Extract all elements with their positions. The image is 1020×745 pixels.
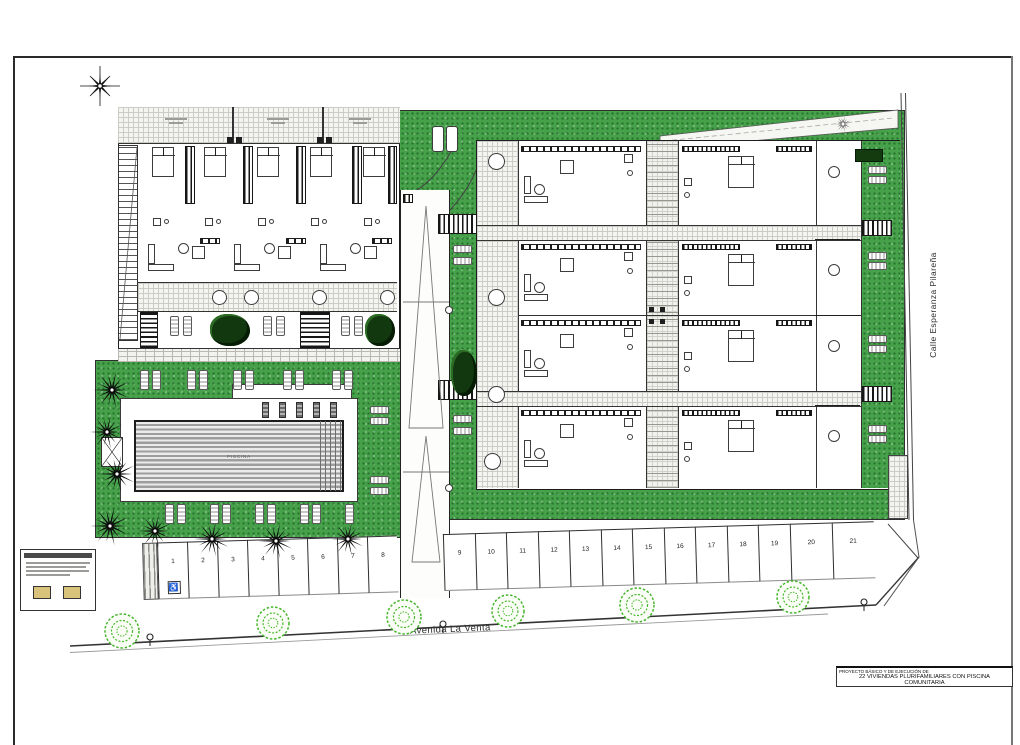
parking-space-number: 20 xyxy=(791,539,832,547)
deck-lounger-icon xyxy=(313,402,320,418)
legend-icon xyxy=(33,586,51,599)
bed-icon xyxy=(728,156,754,188)
sun-lounger-icon xyxy=(370,476,389,484)
bed-pillow-split xyxy=(163,148,164,156)
sofa-icon xyxy=(524,274,531,292)
street-lamp-icon xyxy=(147,634,153,646)
sink-icon xyxy=(322,219,327,224)
sink-icon xyxy=(684,290,690,296)
wardrobe-icon xyxy=(682,320,740,326)
sun-lounger-icon xyxy=(255,504,264,524)
parking-space-number: 11 xyxy=(507,547,538,555)
parking-space-number: 15 xyxy=(633,544,664,552)
kitchen-counter-icon xyxy=(521,244,641,250)
sun-lounger-icon xyxy=(263,316,272,336)
dining-table-icon xyxy=(192,246,205,259)
terrace-table-icon xyxy=(828,430,840,442)
accessible-parking-icon: ♿ xyxy=(167,581,180,594)
sun-lounger-icon xyxy=(868,425,887,433)
sun-lounger-icon xyxy=(453,257,472,265)
stair-core-icon xyxy=(296,146,306,204)
parking-space: 16 xyxy=(663,527,696,585)
parking-space-number: 9 xyxy=(444,549,475,557)
parking-hatch-strip xyxy=(142,543,159,600)
bed-icon xyxy=(152,147,174,177)
sink-icon xyxy=(684,366,690,372)
parked-car-icon xyxy=(432,126,444,152)
shower-icon xyxy=(624,328,633,337)
parking-space: 12 xyxy=(537,530,570,588)
armchair-icon xyxy=(350,243,361,254)
armchair-icon xyxy=(534,358,545,369)
blockA-roof-patio xyxy=(118,107,400,144)
bed-pillow xyxy=(729,421,755,429)
parking-space-number: 10 xyxy=(476,548,507,556)
armchair-icon xyxy=(264,243,275,254)
bed-pillow xyxy=(364,148,386,156)
parking-space-number: 7 xyxy=(338,552,367,560)
parking-space-number: 13 xyxy=(570,545,601,553)
toilet-icon xyxy=(311,218,319,226)
terrace-table-icon xyxy=(212,290,227,305)
patio-label xyxy=(271,122,285,124)
edge-stairs-icon xyxy=(862,386,892,402)
legend-title xyxy=(24,553,92,558)
deck-lounger-icon xyxy=(330,402,337,418)
parking-space-number: 17 xyxy=(696,542,727,550)
terrace-divider xyxy=(815,405,860,406)
sink-icon xyxy=(164,219,169,224)
parking-space: 2 xyxy=(187,541,219,599)
sun-lounger-icon xyxy=(233,370,242,390)
parking-space-number: 21 xyxy=(833,537,874,545)
sheet-frame-top xyxy=(13,56,1013,58)
bed-icon xyxy=(310,147,332,177)
pool-equipment-box xyxy=(101,437,123,467)
parking-space-number: 2 xyxy=(188,557,217,565)
terrace-table-icon xyxy=(828,264,840,276)
sun-lounger-icon xyxy=(177,504,186,524)
stair-core-icon xyxy=(243,146,253,204)
patio-label xyxy=(169,122,183,124)
parking-space-number: 6 xyxy=(308,553,337,561)
pool-label: PISCINA xyxy=(227,454,251,459)
parking-space: 18 xyxy=(726,525,759,583)
sofa-icon xyxy=(524,350,531,368)
bed-pillow-split xyxy=(741,421,742,429)
garden-stair-icon xyxy=(300,312,330,348)
parking-space: 15 xyxy=(632,528,665,586)
sun-lounger-icon xyxy=(868,345,887,353)
sofa-icon xyxy=(524,196,548,203)
parking-space-number: 4 xyxy=(248,555,277,563)
parking-space: 8 xyxy=(367,535,399,593)
sun-lounger-icon xyxy=(210,504,219,524)
dining-table-icon xyxy=(560,258,574,272)
blockB-entry-path xyxy=(477,391,861,407)
bed-icon xyxy=(728,420,754,452)
sun-lounger-icon xyxy=(222,504,231,524)
street-tree-icon xyxy=(492,595,524,627)
sink-icon xyxy=(269,219,274,224)
deck-lounger-icon xyxy=(296,402,303,418)
sun-lounger-icon xyxy=(267,504,276,524)
sink-icon xyxy=(627,170,633,176)
street-tree-icon xyxy=(777,581,809,613)
parking-space: 7 xyxy=(337,536,369,594)
kitchen-counter-icon xyxy=(286,238,306,244)
sun-lounger-icon xyxy=(345,504,354,524)
street-label-bottom: Avenida La Venta xyxy=(410,622,491,637)
sofa-icon xyxy=(148,244,155,264)
sun-lounger-icon xyxy=(295,370,304,390)
wardrobe-icon xyxy=(776,320,812,326)
patio-label xyxy=(353,122,367,124)
parking-space-number: 16 xyxy=(665,543,696,551)
shower-icon xyxy=(624,418,633,427)
toilet-icon xyxy=(684,352,692,360)
shower-icon xyxy=(624,252,633,261)
parking-space: 3 xyxy=(217,540,249,598)
sun-lounger-icon xyxy=(283,370,292,390)
terrace-divider xyxy=(815,315,860,316)
bed-pillow-split xyxy=(268,148,269,156)
bed-pillow xyxy=(258,148,280,156)
corridor-post xyxy=(649,319,654,324)
edge-stairs-icon xyxy=(862,220,892,236)
sun-lounger-icon xyxy=(354,316,363,336)
bed-pillow-split xyxy=(741,157,742,165)
sun-lounger-icon xyxy=(300,504,309,524)
ramp-passage xyxy=(397,534,445,592)
sun-lounger-icon xyxy=(453,415,472,423)
sun-lounger-icon xyxy=(868,335,887,343)
dining-table-icon xyxy=(560,334,574,348)
bed-icon xyxy=(257,147,279,177)
blockB-entry-path xyxy=(477,225,861,241)
patio-label xyxy=(165,118,187,120)
planting-bed-icon xyxy=(365,314,395,346)
bed-pillow-split xyxy=(741,331,742,339)
sun-lounger-icon xyxy=(183,316,192,336)
sink-icon xyxy=(216,219,221,224)
planter-icon xyxy=(488,386,505,403)
corridor-post xyxy=(660,307,665,312)
parking-space: 17 xyxy=(695,526,728,584)
sun-lounger-icon xyxy=(170,316,179,336)
ramp-column xyxy=(445,484,453,492)
stair-core-icon xyxy=(352,146,362,204)
corridor-post xyxy=(660,319,665,324)
kitchen-counter-icon xyxy=(521,320,641,326)
sun-lounger-icon xyxy=(370,417,389,425)
north-arrow-icon xyxy=(80,66,120,106)
sink-icon xyxy=(375,219,380,224)
parking-space-number: 14 xyxy=(602,544,633,552)
parking-space-number: 18 xyxy=(728,541,759,549)
patio-label xyxy=(349,118,371,120)
toilet-icon xyxy=(684,178,692,186)
kitchen-counter-icon xyxy=(200,238,220,244)
sun-lounger-icon xyxy=(245,370,254,390)
armchair-icon xyxy=(534,282,545,293)
sheet-frame-left xyxy=(13,56,15,745)
armchair-icon xyxy=(534,448,545,459)
sun-lounger-icon xyxy=(312,504,321,524)
sun-lounger-icon xyxy=(140,370,149,390)
bed-pillow-split xyxy=(374,148,375,156)
armchair-icon xyxy=(534,184,545,195)
kitchen-counter-icon xyxy=(521,146,641,152)
sofa-icon xyxy=(524,294,548,301)
wardrobe-icon xyxy=(776,410,812,416)
parking-space: 14 xyxy=(600,528,633,586)
sun-lounger-icon xyxy=(453,427,472,435)
planter-icon xyxy=(488,289,505,306)
toilet-icon xyxy=(205,218,213,226)
toilet-icon xyxy=(684,442,692,450)
sun-lounger-icon xyxy=(868,252,887,260)
door-post xyxy=(236,137,242,143)
terrace-table-icon xyxy=(244,290,259,305)
parking-space: 19 xyxy=(758,524,791,582)
sun-lounger-icon xyxy=(344,370,353,390)
bed-pillow-split xyxy=(215,148,216,156)
title-block-line3: Y APARCAMIENTO PRIVADO xyxy=(839,686,1010,687)
parking-space: 1 ♿ xyxy=(157,542,189,600)
title-block-line2: 22 VIVIENDAS PLURIFAMILIARES CON PISCINA… xyxy=(839,674,1010,686)
wardrobe-icon xyxy=(682,244,740,250)
sofa-icon xyxy=(234,244,241,264)
dining-table-icon xyxy=(278,246,291,259)
dining-table-icon xyxy=(560,424,574,438)
street-tree-icon xyxy=(257,607,289,639)
bed-pillow xyxy=(729,255,755,263)
sun-lounger-icon xyxy=(332,370,341,390)
sink-icon xyxy=(627,344,633,350)
sun-lounger-icon xyxy=(453,245,472,253)
parking-space: 5 xyxy=(277,538,309,596)
legend-box xyxy=(20,549,96,611)
terrace-divider xyxy=(815,239,860,240)
sheet-frame-right xyxy=(1011,56,1013,745)
toilet-icon xyxy=(364,218,372,226)
parking-space: 21 xyxy=(831,521,875,579)
sink-icon xyxy=(684,456,690,462)
toilet-icon xyxy=(258,218,266,226)
parking-space: 9 xyxy=(443,533,476,591)
deck-lounger-icon xyxy=(262,402,269,418)
kitchen-counter-icon xyxy=(521,410,641,416)
terrace-table-icon xyxy=(828,340,840,352)
parking-space-number: 3 xyxy=(218,556,247,564)
parking-space-number: 12 xyxy=(539,546,570,554)
wardrobe-icon xyxy=(776,146,812,152)
dining-table-icon xyxy=(560,160,574,174)
legend-icon xyxy=(63,586,81,599)
bed-icon xyxy=(728,330,754,362)
unit-divider xyxy=(519,315,861,316)
sun-lounger-icon xyxy=(868,262,887,270)
blockA-front-walkway xyxy=(118,348,400,362)
garden-stair-icon xyxy=(140,312,158,348)
bed-icon xyxy=(728,254,754,286)
bed-pillow xyxy=(153,148,175,156)
sink-icon xyxy=(684,192,690,198)
sun-lounger-icon xyxy=(868,435,887,443)
planting-bed-icon xyxy=(210,314,250,346)
blockA-terrace-strip xyxy=(138,282,397,312)
corridor-post xyxy=(649,307,654,312)
toilet-icon xyxy=(684,276,692,284)
parking-space: 13 xyxy=(569,529,602,587)
wardrobe-icon xyxy=(682,410,740,416)
sun-lounger-icon xyxy=(868,166,887,174)
sofa-icon xyxy=(524,440,531,458)
street-tree-icon xyxy=(620,588,654,622)
planter-icon xyxy=(484,453,501,470)
parking-space: 11 xyxy=(506,531,539,589)
parking-space: 6 xyxy=(307,537,339,595)
title-block: PROYECTO BÁSICO Y DE EJECUCIÓN DE 22 VIV… xyxy=(836,666,1013,687)
sofa-icon xyxy=(524,460,548,467)
wardrobe-icon xyxy=(682,146,740,152)
ramp-column xyxy=(445,306,453,314)
terrace-table-icon xyxy=(828,166,840,178)
sofa-icon xyxy=(320,244,327,264)
hedge-icon xyxy=(855,149,883,162)
pool-steps xyxy=(320,421,343,491)
sofa-icon xyxy=(524,370,548,377)
ramp-gate-icon xyxy=(403,194,413,203)
blockB-left-walkway xyxy=(477,141,519,488)
sun-lounger-icon xyxy=(341,316,350,336)
sun-lounger-icon xyxy=(199,370,208,390)
bed-pillow xyxy=(311,148,333,156)
patio-label xyxy=(267,118,289,120)
door-post xyxy=(317,137,323,143)
stair-core-icon xyxy=(388,146,397,204)
bed-pillow xyxy=(729,331,755,339)
bed-icon xyxy=(363,147,385,177)
street-label-right: Calle Esperanza Pilareña xyxy=(928,245,938,365)
terrace-table-icon xyxy=(380,290,395,305)
sun-lounger-icon xyxy=(370,406,389,414)
parking-space: 20 xyxy=(789,523,833,581)
kitchen-counter-icon xyxy=(372,238,392,244)
bed-pillow xyxy=(205,148,227,156)
sofa-icon xyxy=(524,176,531,194)
sun-lounger-icon xyxy=(868,176,887,184)
toilet-icon xyxy=(153,218,161,226)
bed-pillow-split xyxy=(321,148,322,156)
deck-lounger-icon xyxy=(279,402,286,418)
sofa-icon xyxy=(148,264,174,271)
armchair-icon xyxy=(178,243,189,254)
blockA-staircase xyxy=(118,145,138,341)
parking-space-number: 5 xyxy=(278,554,307,562)
parking-space-number: 19 xyxy=(759,540,790,548)
sun-lounger-icon xyxy=(152,370,161,390)
bed-icon xyxy=(204,147,226,177)
door-post xyxy=(326,137,332,143)
street-tree-icon xyxy=(105,614,139,648)
bed-pillow xyxy=(729,157,755,165)
parking-space: 4 xyxy=(247,539,279,597)
bed-pillow-split xyxy=(741,255,742,263)
planting-bed-icon xyxy=(451,350,477,396)
parked-car-icon xyxy=(446,126,458,152)
terrace-table-icon xyxy=(312,290,327,305)
swimming-pool: PISCINA xyxy=(134,420,344,492)
wardrobe-icon xyxy=(776,244,812,250)
planter-icon xyxy=(488,153,505,170)
sink-icon xyxy=(627,434,633,440)
parking-space: 10 xyxy=(474,532,507,590)
parking-space-number: 1 xyxy=(158,558,187,566)
sun-lounger-icon xyxy=(276,316,285,336)
dining-table-icon xyxy=(364,246,377,259)
site-plan-sheet: PISCINA 1 ♿ 2 3 4 5 6 7 8 9 10 11 12 13 … xyxy=(0,0,1020,745)
door-post xyxy=(227,137,233,143)
sofa-icon xyxy=(234,264,260,271)
sun-lounger-icon xyxy=(165,504,174,524)
stair-core-icon xyxy=(185,146,195,204)
street-lamp-icon xyxy=(861,599,867,611)
sink-icon xyxy=(627,268,633,274)
parking-space-number: 8 xyxy=(368,551,397,559)
side-path xyxy=(888,455,908,519)
sun-lounger-icon xyxy=(370,487,389,495)
sun-lounger-icon xyxy=(187,370,196,390)
sofa-icon xyxy=(320,264,346,271)
shower-icon xyxy=(624,154,633,163)
